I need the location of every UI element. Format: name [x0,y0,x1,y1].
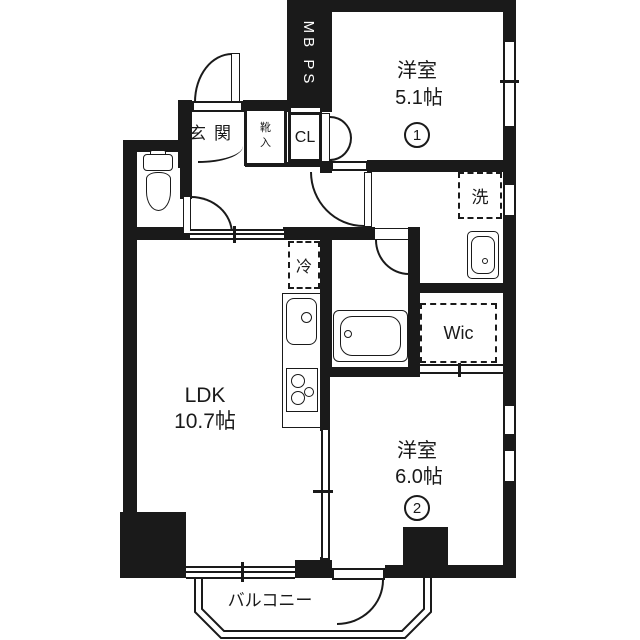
window-room2-lower [503,451,516,481]
room1-door-sill [331,161,368,171]
refrigerator-space-box: 冷 [288,241,320,289]
partition-sliding-door [321,430,330,558]
washer-label: 洗 [472,183,489,208]
stove-burner-2 [304,387,314,397]
room2-name-label: 洋室 [357,436,477,460]
wic-sliding-door-tick [458,361,461,377]
ldk-sliding-door-tick [233,226,236,243]
toilet-tank-icon [143,154,173,171]
room1-door-swing [310,172,364,227]
entrance-door-swing [194,53,232,102]
ldk-size-label: 10.7帖 [145,409,265,431]
wall-room1-bottom [367,160,503,172]
wall-right-1 [503,0,516,44]
room1-name-label: 洋室 [357,56,477,80]
room2-number-badge: 2 [404,495,430,521]
entrance-door-sill [192,101,243,112]
bathroom-door-swing [375,240,409,275]
stove-burner-3 [291,391,305,405]
ldk-sliding-door-midline [190,233,284,235]
room1-number-badge: 1 [404,122,430,148]
genkan-label: 玄関 [186,121,242,141]
partition-sliding-door-tick [313,490,333,493]
shoe-cabinet-label: 靴入 [257,114,274,158]
wall-left-outer [123,140,137,515]
kitchen-sink-icon [286,298,317,345]
window-room1-tick [500,80,519,83]
closet-bifold-swing-top [330,116,352,138]
window-room2-upper [503,406,516,434]
wic-sliding-door [420,364,503,374]
closet-label: CL [288,128,322,148]
closet-bifold-swing-bottom [330,138,352,161]
room2-size-label: 6.0帖 [357,463,481,485]
wall-room1-top [320,0,516,12]
washbasin-inner-icon [471,236,495,274]
pillar-bottom-left [120,512,186,578]
wall-room1-left [320,0,332,112]
washer-space-box: 洗 [458,172,502,219]
wall-right-3 [503,213,516,408]
closet-bifold-panel [321,113,330,162]
meter-box-label: MB PS [300,6,318,102]
window-room1 [503,42,516,126]
genkan-step-line [198,146,243,163]
wall-right-2 [503,124,516,187]
wall-hall-bottom-left [123,227,191,240]
bathroom-door-leaf [374,228,409,240]
pillar-room2 [403,527,448,568]
stove-burner-1 [291,374,305,388]
wall-washroom-bottom [413,283,503,293]
refrigerator-label: 冷 [296,253,312,277]
balcony-label: バルコニー [205,588,335,608]
wall-bath-right [408,227,420,377]
entrance-door-leaf [231,53,240,102]
room1-number: 1 [413,127,421,144]
room2-number: 2 [413,500,421,517]
room1-size-label: 5.1帖 [357,84,481,106]
wall-right-5 [503,479,516,578]
floor-plan: 洗 冷 Wic 靴入 CL MB PS 玄関 洋室 5.1帖 1 LDK 10.… [0,0,640,640]
ldk-name-label: LDK [155,385,255,407]
wall-hall-bottom-right [283,227,375,240]
wall-bath-bottom [320,367,420,377]
window-washroom [503,185,516,215]
wall-partition-upper [320,376,330,431]
kitchen-faucet-icon [301,312,312,323]
wic-box: Wic [420,303,497,363]
wall-toilet-right [180,152,192,199]
toilet-bowl-icon [146,172,171,211]
wall-bath-left [320,240,332,377]
wic-label: Wic [444,323,474,344]
room1-door-leaf [364,172,372,227]
washbasin-drain-icon [482,258,488,264]
bathtub-drain-icon [344,330,352,338]
